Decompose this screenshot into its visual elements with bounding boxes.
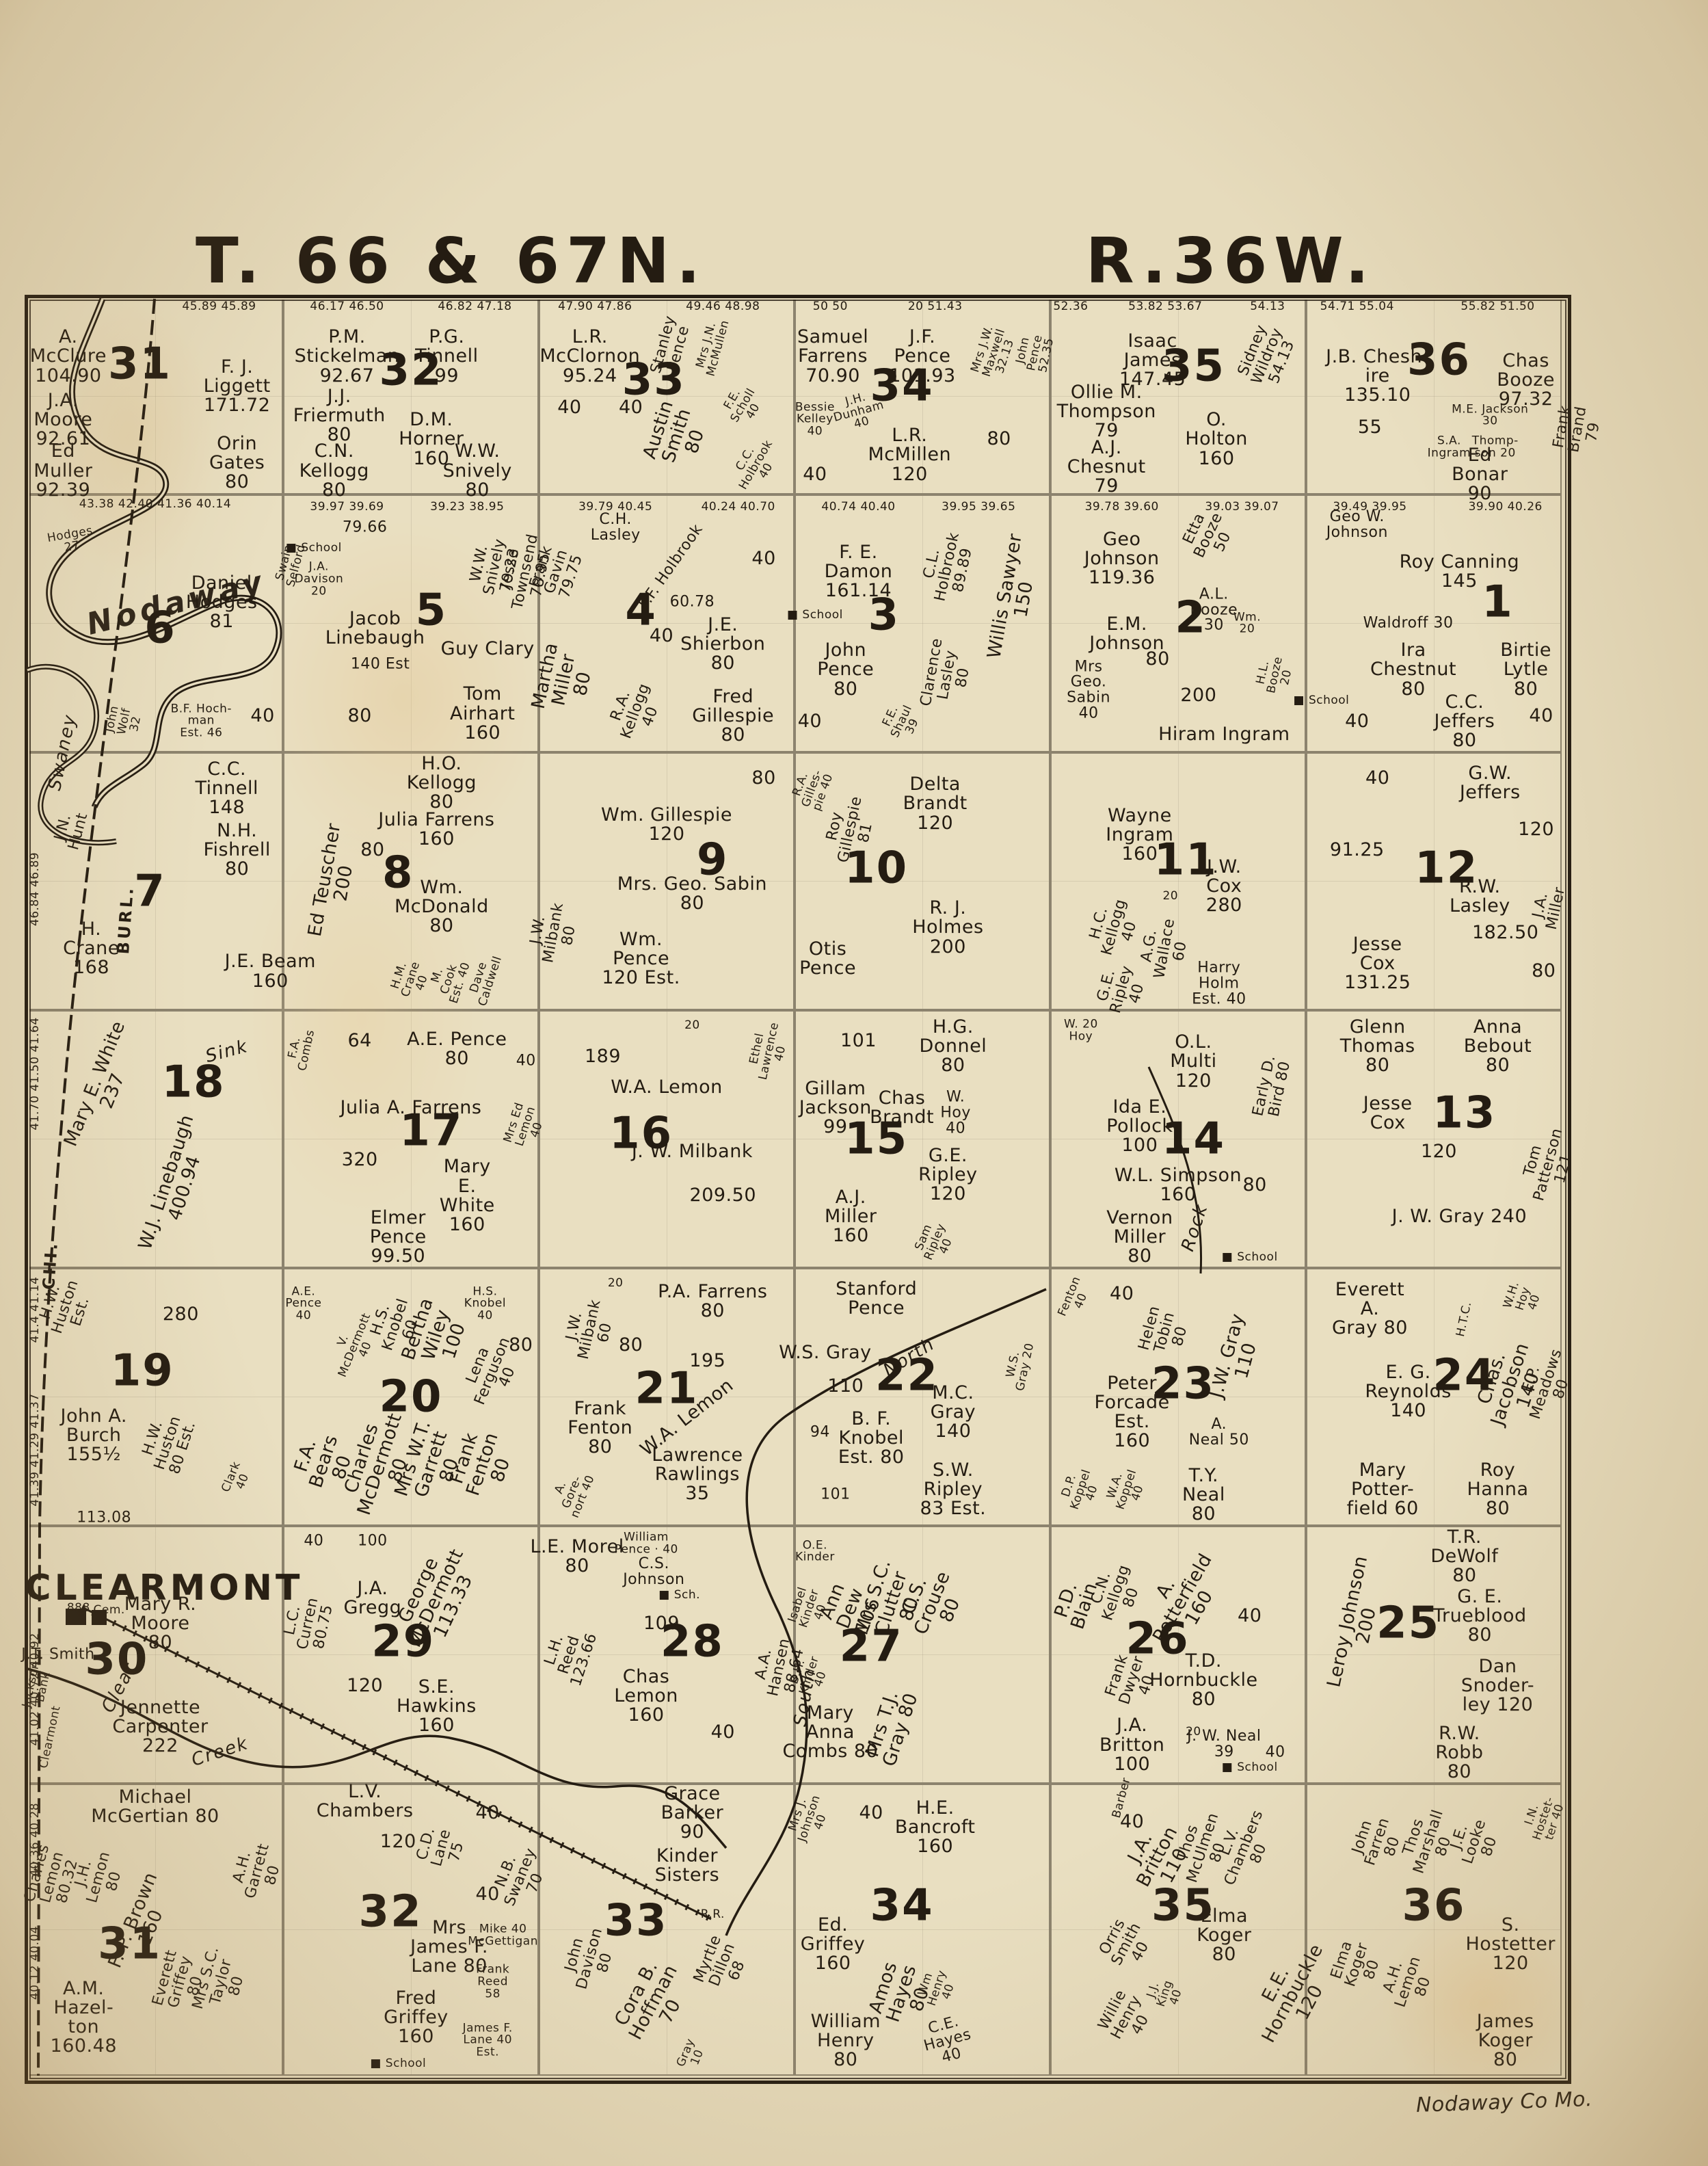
parcel-label: ■ School — [787, 609, 843, 622]
parcel-label: 39.97 39.69 — [310, 501, 384, 514]
parcel-label: L.V. Chambers — [317, 1782, 414, 1821]
parcel-label: H.O. Kellogg 80 — [407, 754, 477, 812]
parcel-label: B. F. Knobel Est. 80 — [838, 1410, 905, 1467]
parcel-label: 94 — [810, 1425, 830, 1441]
parcel-label: J.E. Beam 160 — [225, 952, 316, 990]
parcel-label: Harry Holm Est. 40 — [1192, 961, 1246, 1008]
parcel-label: S.W. Ripley 83 Est. — [920, 1461, 987, 1518]
parcel-label: 80 — [348, 706, 372, 726]
map-title: T. 66 & 67N. — [196, 228, 707, 294]
parcel-label: F. E. Damon 161.14 — [825, 543, 893, 600]
parcel-label: 40 — [1110, 1284, 1134, 1304]
parcel-label: Ed Muller 92.39 — [34, 442, 92, 499]
parcel-label: Delta Brandt 120 — [903, 775, 968, 832]
parcel-label: Kinder Sisters — [655, 1846, 720, 1884]
parcel-label: ■ School — [1222, 1252, 1278, 1264]
parcel-label: 64 — [348, 1031, 372, 1051]
parcel-label: 91.25 — [1330, 841, 1385, 860]
map-label: 41.4 41.14 — [29, 1277, 42, 1343]
parcel-label: ■ School — [1293, 695, 1349, 707]
parcel-label: Roy Canning 145 — [1400, 553, 1520, 591]
parcel-label: H.G. Donnel 80 — [920, 1018, 987, 1075]
parcel-label: A. Neal 50 — [1189, 1417, 1249, 1449]
parcel-label: G. E. Trueblood 80 — [1433, 1587, 1527, 1645]
parcel-label: O.E. Kinder — [795, 1540, 835, 1563]
parcel-label: 40 — [859, 1804, 883, 1823]
parcel-label: P.G. Tinnell 99 — [415, 328, 479, 385]
section-number-31: 31 — [108, 342, 172, 388]
parcel-label: 189 — [585, 1047, 621, 1066]
parcel-label: 101 — [820, 1487, 851, 1503]
parcel-label: L.E. Morel 80 — [530, 1537, 624, 1576]
parcel-label: 195 — [689, 1351, 725, 1371]
parcel-label: 120 — [1421, 1142, 1457, 1161]
parcel-label: J.B. Chesh- ire 135.10 — [1326, 347, 1429, 405]
parcel-label: Vernon Miller 80 — [1106, 1209, 1173, 1266]
parcel-label: 280 — [163, 1305, 199, 1324]
parcel-label: 50 50 — [813, 302, 848, 314]
parcel-label: 40 — [803, 465, 827, 484]
parcel-label: 40 — [1365, 769, 1389, 788]
parcel-label: 80 — [987, 430, 1011, 449]
parcel-label: 182.50 — [1472, 923, 1538, 942]
parcel-label: O.L. Multi 120 — [1170, 1033, 1217, 1090]
parcel-label: 40 — [1238, 1607, 1262, 1626]
parcel-label: 20 — [684, 1020, 700, 1032]
parcel-label: 55 — [1358, 418, 1382, 437]
parcel-label: A.J. Chesnut 79 — [1067, 438, 1146, 496]
parcel-label: A. McClure 104.90 — [30, 328, 107, 385]
parcel-label: 40 — [304, 1533, 323, 1549]
parcel-label: Waldroff 30 — [1363, 616, 1454, 631]
parcel-label: P.M. Stickelman 92.67 — [295, 328, 400, 385]
parcel-label: 40 — [619, 398, 643, 417]
parcel-label: J. W. Milbank — [632, 1142, 753, 1161]
parcel-label: John Pence 52.35 — [1013, 331, 1056, 374]
parcel-label: Birtie Lytle 80 — [1500, 641, 1551, 698]
parcel-label: M.E. Jackson 30 — [1452, 404, 1528, 427]
parcel-label: 101 — [840, 1031, 877, 1051]
parcel-label: 46.17 46.50 — [310, 302, 384, 314]
parcel-label: 80 — [360, 841, 384, 860]
parcel-label: A.L. Booze 30 — [1190, 587, 1238, 634]
map-label: 40.36 40.28 — [29, 1803, 42, 1877]
parcel-label: Mike 40 McGettigan — [468, 1923, 538, 1947]
parcel-label: S.E. Hawkins 160 — [397, 1678, 477, 1735]
parcel-label: ■ School — [1222, 1762, 1278, 1775]
parcel-label: Geo Johnson 119.36 — [1084, 530, 1160, 587]
parcel-label: 80 — [1145, 650, 1169, 669]
parcel-label: Fred Griffey 160 — [384, 1988, 449, 2046]
parcel-label: E. G. Reynolds 140 — [1365, 1363, 1451, 1421]
parcel-label: Samuel Farrens 70.90 — [797, 328, 868, 385]
parcel-label: 45.89 45.89 — [182, 302, 256, 314]
parcel-label: F. J. Liggett 171.72 — [204, 357, 271, 414]
parcel-label: Ed Bonar 90 — [1452, 446, 1508, 503]
parcel-label: 39.03 39.07 — [1205, 501, 1279, 514]
parcel-label: H.L. Booze 20 — [1254, 653, 1297, 697]
parcel-label: 40 — [557, 398, 581, 417]
parcel-label: 60.78 — [670, 595, 715, 611]
parcel-label: Wayne Ingram 160 — [1106, 806, 1173, 864]
parcel-label: 209.50 — [690, 1186, 756, 1205]
section-number-34: 34 — [870, 1884, 934, 1929]
parcel-label: P.A. Farrens 80 — [658, 1282, 767, 1321]
parcel-label: C.C. Tinnell 148 — [195, 760, 258, 817]
parcel-label: 40 — [250, 706, 274, 726]
plat-map-page: { "map": { "title_left": "T. 66 & 67N.",… — [0, 0, 1708, 2166]
section-number-7: 7 — [134, 869, 166, 914]
parcel-label: Roy Hanna 80 — [1467, 1461, 1528, 1518]
parcel-label: 40 — [751, 549, 775, 568]
parcel-label: A.E. Pence 80 — [407, 1029, 507, 1068]
parcel-label: Orin Gates 80 — [209, 434, 265, 492]
section-number-25: 25 — [1376, 1601, 1440, 1647]
parcel-label: T.D. Hornbuckle 80 — [1149, 1652, 1257, 1709]
parcel-label: Mary E. White 160 — [440, 1157, 495, 1234]
parcel-label: H.E. Bancroft 160 — [895, 1799, 976, 1856]
map-label: 40.12 40.04 — [29, 1926, 42, 2000]
section-number-18: 18 — [162, 1059, 226, 1105]
parcel-label: 40 — [650, 626, 673, 646]
parcel-label: Chas Lemon 160 — [614, 1667, 678, 1725]
parcel-label: W. 20 Hoy — [1064, 1018, 1098, 1042]
parcel-label: 80 — [1532, 962, 1556, 981]
parcel-label: 40.24 40.70 — [702, 501, 775, 514]
parcel-label: W.A. Lemon — [611, 1078, 722, 1097]
parcel-label: J.E. Shierbon 80 — [680, 616, 765, 673]
parcel-label: William Pence · 40 — [614, 1532, 678, 1556]
parcel-label: 120 — [347, 1676, 383, 1695]
parcel-label: C.C. Jeffers 80 — [1434, 693, 1495, 750]
parcel-label: 40 — [1266, 1745, 1285, 1760]
parcel-label: J.A. Britton 100 — [1099, 1716, 1164, 1773]
parcel-label: Wm. Pence 120 Est. — [602, 929, 680, 987]
parcel-label: Lawrence Rawlings 35 — [652, 1445, 743, 1503]
parcel-label: C.H. Lasley — [591, 512, 641, 544]
section-number-13: 13 — [1432, 1091, 1496, 1137]
parcel-label: Julia Farrens 160 — [378, 810, 494, 849]
parcel-label: Jacob Linebaugh — [325, 609, 425, 648]
parcel-label: R. J. Holmes 200 — [912, 899, 983, 956]
parcel-label: Wm. McDonald 80 — [395, 878, 489, 936]
parcel-label: 80 — [509, 1336, 533, 1355]
parcel-label: T.Y. Neal 80 — [1182, 1466, 1225, 1524]
parcel-label: 54.13 — [1250, 302, 1285, 314]
parcel-label: Grace Barker 90 — [661, 1784, 724, 1842]
parcel-label: Mary Potter- field 60 — [1347, 1461, 1419, 1518]
map-label: 41.70 41.50 41.64 — [29, 1017, 42, 1130]
parcel-label: Peter Forcade Est. 160 — [1095, 1374, 1170, 1451]
parcel-label: 80 — [1243, 1176, 1267, 1195]
parcel-label: Isaac James 147.45 — [1119, 332, 1186, 389]
parcel-label: 109 — [643, 1614, 680, 1633]
parcel-label: A.J. Miller 160 — [825, 1187, 877, 1245]
parcel-label: R.R. — [701, 1909, 725, 1921]
parcel-label: 200 — [1180, 686, 1216, 705]
parcel-label: Jesse Cox — [1363, 1094, 1413, 1133]
parcel-label: Chas Booze 97.32 — [1497, 352, 1555, 409]
railroad-label: CHI. — [40, 1240, 61, 1290]
parcel-label: 120 — [380, 1832, 416, 1851]
parcel-label: Frank Fenton 80 — [568, 1399, 632, 1457]
parcel-label: 40 — [798, 712, 822, 731]
parcel-label: J.F. Pence 101.93 — [889, 328, 955, 385]
parcel-label: Wm. Gillespie 120 — [601, 805, 732, 843]
parcel-label: 39.90 40.26 — [1469, 501, 1543, 514]
parcel-label: C.N. Kellogg 80 — [299, 442, 369, 499]
parcel-label: Glenn Thomas 80 — [1340, 1018, 1415, 1075]
parcel-label: J.A. Moore 92.61 — [34, 391, 92, 448]
parcel-label: Wm. 20 — [1233, 611, 1261, 635]
parcel-label: A.M. Hazel- ton 160.48 — [51, 1979, 117, 2055]
parcel-label: Anna Bebout 80 — [1464, 1018, 1532, 1075]
parcel-label: J.W. Cox 280 — [1206, 858, 1242, 915]
parcel-label: 110 — [827, 1377, 864, 1396]
parcel-label: Elma Koger 80 — [1197, 1907, 1251, 1964]
parcel-label: L.R. McClornon 95.24 — [539, 328, 640, 385]
parcel-label: N.H. Fishrell 80 — [203, 821, 270, 879]
parcel-label: 54.71 55.04 — [1320, 302, 1394, 314]
parcel-label: J. W. Gray 240 — [1392, 1207, 1527, 1226]
parcel-label: 113.08 — [77, 1510, 131, 1526]
parcel-label: Guy Clary — [441, 639, 535, 659]
map-title: R.36W. — [1086, 228, 1376, 294]
parcel-label: William Henry 80 — [811, 2012, 881, 2070]
parcel-label: 40 — [1345, 712, 1369, 731]
parcel-label: Tom Airhart 160 — [450, 685, 515, 742]
parcel-label: Otis Pence — [799, 940, 856, 978]
parcel-label: Elmer Pence 99.50 — [370, 1209, 427, 1266]
parcel-label: Hiram Ingram — [1158, 725, 1290, 744]
parcel-label: J.J. Friermuth 80 — [293, 387, 386, 445]
parcel-label: Mrs Geo. Sabin 40 — [1067, 659, 1110, 722]
parcel-label: Ed. Griffey 160 — [801, 1916, 866, 1973]
parcel-label: 39.78 39.60 — [1085, 501, 1159, 514]
parcel-label: 20 51.43 — [908, 302, 963, 314]
parcel-label: O. Holton 160 — [1185, 410, 1248, 468]
parcel-label: T.R. DeWolf 80 — [1430, 1528, 1498, 1585]
parcel-label: W. Hoy 40 — [940, 1089, 971, 1137]
parcel-label: 46.82 47.18 — [438, 302, 511, 314]
town-label: CLEARMONT — [25, 1570, 303, 1607]
parcel-label: 43.38 42.40 41.36 40.14 — [79, 499, 231, 511]
section-number-19: 19 — [111, 1349, 174, 1395]
parcel-label: 39.95 39.65 — [942, 501, 1015, 514]
parcel-label: Ida E. Pollock 100 — [1106, 1098, 1173, 1155]
parcel-label: 47.90 47.86 — [558, 302, 632, 314]
parcel-label: L.R. McMillen 120 — [868, 426, 951, 484]
parcel-label: Julia A. Farrens — [341, 1098, 482, 1118]
parcel-label: 79.66 — [343, 520, 387, 536]
parcel-label: Gillam Jackson 99 — [799, 1079, 872, 1137]
parcel-label: G.W. Jeffers — [1460, 764, 1521, 802]
map-label: 46.84 46.89 — [29, 852, 42, 926]
parcel-label: ■ Sch. — [658, 1589, 700, 1602]
parcel-label: 49.46 48.98 — [686, 302, 760, 314]
parcel-label: G.E. Ripley 120 — [918, 1146, 978, 1204]
parcel-label: 40 — [476, 1804, 500, 1823]
parcel-label: A.E. Pence 40 — [285, 1286, 321, 1322]
parcel-label: Ira Chestnut 80 — [1370, 641, 1456, 698]
parcel-label: Jesse Cox 131.25 — [1344, 935, 1411, 992]
parcel-label: 40 — [711, 1723, 735, 1742]
parcel-label: R.W. Lasley — [1450, 877, 1510, 916]
parcel-label: 52.36 — [1053, 302, 1088, 314]
parcel-label: James F. Lane 40 Est. — [463, 2022, 513, 2059]
parcel-label: 80 — [619, 1336, 643, 1355]
parcel-label: Stanford Pence — [836, 1280, 917, 1318]
parcel-label: Mrs. Geo. Sabin 80 — [617, 875, 767, 913]
parcel-label: J.A. Gregg — [343, 1579, 401, 1617]
map-label: Frank Brand 79 — [1551, 403, 1605, 457]
parcel-label: 80 — [751, 769, 775, 788]
parcel-label: Geo W. Johnson — [1326, 510, 1388, 541]
parcel-label: H. Crane 168 — [63, 919, 120, 977]
parcel-label: W.S. Gray — [779, 1343, 872, 1362]
parcel-label: Frank Reed 58 — [476, 1964, 509, 2000]
parcel-label: E.M. Johnson — [1089, 615, 1164, 653]
parcel-label: Everett A. Gray 80 — [1332, 1280, 1408, 1338]
parcel-label: 120 — [1518, 820, 1554, 839]
parcel-label: 53.82 53.67 — [1128, 302, 1202, 314]
parcel-label: Ollie M. Thompson 79 — [1057, 383, 1156, 440]
parcel-label: B.F. Hoch- man Est. 46 — [171, 703, 232, 739]
parcel-label: Jennette Carpenter 222 — [112, 1698, 208, 1756]
parcel-label: 20 — [608, 1278, 624, 1290]
parcel-label: Dan Snoder- ley 120 — [1461, 1657, 1534, 1715]
parcel-label: S. Hostetter 120 — [1465, 1916, 1555, 1973]
parcel-label: 40 — [1529, 706, 1553, 726]
parcel-label: W.L. Simpson 160 — [1115, 1166, 1242, 1204]
parcel-label: 55.82 51.50 — [1460, 302, 1534, 314]
county-note: Nodaway Co Mo. — [1416, 2089, 1593, 2116]
parcel-label: 140 Est — [351, 657, 410, 672]
parcel-label: 320 — [342, 1150, 378, 1170]
parcel-label: Michael McGertian 80 — [91, 1788, 219, 1826]
parcel-label: 39.23 38.95 — [430, 501, 504, 514]
parcel-label: Fred Gillespie 80 — [692, 687, 774, 745]
parcel-label: 100 — [358, 1533, 388, 1549]
parcel-label: 40 — [516, 1054, 536, 1070]
parcel-label: W.W. Snively 80 — [443, 442, 512, 499]
parcel-label: John Pence 80 — [817, 641, 874, 698]
parcel-label: 40.74 40.40 — [821, 501, 895, 514]
parcel-label: M.C. Gray 140 — [931, 1384, 976, 1441]
parcel-label: H.S. Knobel 40 — [464, 1286, 506, 1322]
parcel-label: 20 — [1162, 890, 1178, 903]
parcel-label: ■ School — [370, 2058, 426, 2070]
parcel-label: R.W. Robb 80 — [1435, 1724, 1483, 1782]
parcel-label: Bessie Kelley 40 — [795, 401, 835, 438]
parcel-label: C.S. Johnson — [623, 1557, 684, 1588]
section-number-36: 36 — [1402, 1884, 1465, 1929]
map-label: 41.39 41.29 41.37 — [29, 1393, 42, 1506]
parcel-label: J. W. Neal 39 — [1187, 1730, 1261, 1761]
parcel-label: James Koger 80 — [1477, 2012, 1534, 2070]
parcel-label: Chas Brandt — [870, 1089, 934, 1127]
parcel-label: John A. Burch 155½ — [61, 1407, 127, 1464]
map-label: 41.02 40.72 40.92 — [29, 1633, 42, 1745]
